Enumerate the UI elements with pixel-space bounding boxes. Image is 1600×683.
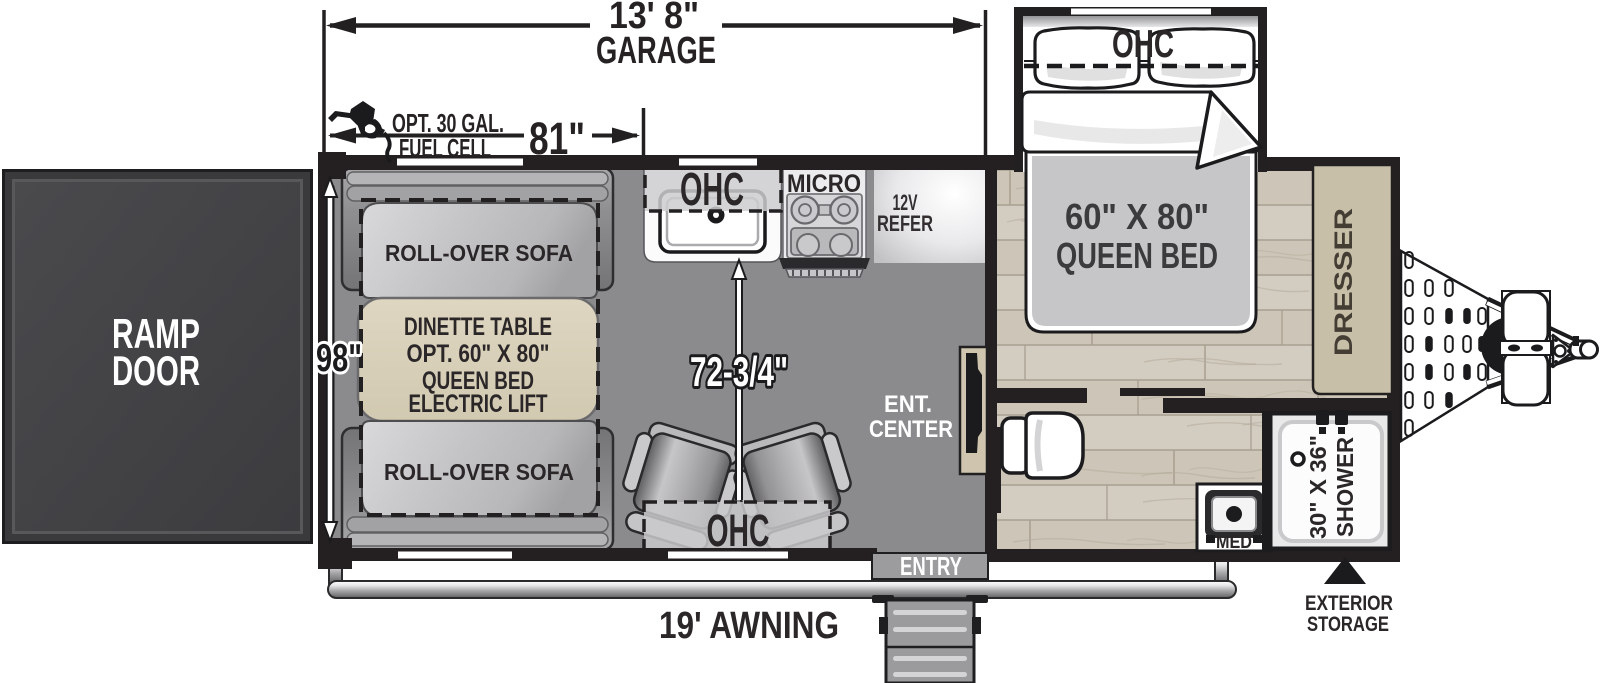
svg-text:DINETTE TABLE: DINETTE TABLE [404, 313, 552, 341]
svg-text:ENTRY: ENTRY [900, 551, 962, 581]
svg-text:72-3/4": 72-3/4" [690, 348, 788, 395]
svg-text:MED: MED [1216, 532, 1252, 552]
svg-text:EXTERIOR: EXTERIOR [1305, 592, 1393, 615]
svg-text:OHC: OHC [1112, 23, 1174, 66]
svg-text:OPT. 60" X 80": OPT. 60" X 80" [407, 340, 550, 368]
svg-text:FUEL CELL: FUEL CELL [399, 133, 491, 163]
svg-text:19' AWNING: 19' AWNING [659, 605, 839, 647]
svg-text:MICRO: MICRO [787, 170, 861, 198]
svg-text:QUEEN BED: QUEEN BED [1056, 235, 1218, 276]
svg-text:OHC: OHC [680, 163, 744, 215]
svg-text:30" X 36": 30" X 36" [1305, 435, 1331, 539]
svg-text:DOOR: DOOR [112, 347, 200, 394]
svg-text:SHOWER: SHOWER [1332, 437, 1358, 537]
svg-text:DRESSER: DRESSER [1330, 208, 1358, 356]
svg-text:98": 98" [316, 337, 362, 380]
svg-text:REFER: REFER [877, 211, 933, 236]
svg-text:GARAGE: GARAGE [596, 30, 716, 72]
svg-text:ELECTRIC LIFT: ELECTRIC LIFT [409, 390, 548, 418]
svg-text:ROLL-OVER SOFA: ROLL-OVER SOFA [384, 459, 574, 485]
svg-text:ROLL-OVER SOFA: ROLL-OVER SOFA [385, 240, 573, 266]
svg-text:CENTER: CENTER [869, 416, 953, 443]
svg-text:STORAGE: STORAGE [1307, 613, 1389, 636]
svg-text:ENT.: ENT. [884, 391, 932, 418]
svg-text:60" X 80": 60" X 80" [1065, 196, 1209, 237]
svg-text:81": 81" [529, 113, 585, 164]
